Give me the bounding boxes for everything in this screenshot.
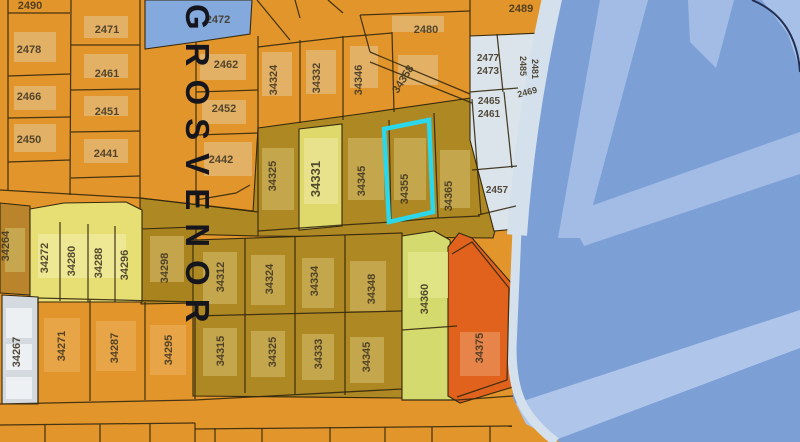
parcel-label-34348: 34348 — [366, 274, 378, 305]
parcel-label-2477: 2477 — [477, 53, 500, 64]
parcel-label-34280: 34280 — [66, 246, 78, 277]
parcel-label-34315: 34315 — [215, 336, 227, 367]
parcel-label-34264: 34264 — [0, 230, 12, 261]
building-footprint — [6, 377, 32, 399]
parcel-map-viewport: Parcel map with selected parcel 34355 24… — [0, 0, 800, 442]
parcel-label-34345: 34345 — [361, 342, 373, 373]
parcel-label-2461: 2461 — [478, 109, 501, 120]
parcel-map[interactable]: Parcel map with selected parcel 34355 24… — [0, 0, 800, 442]
parcel-label-34324: 34324 — [264, 263, 276, 294]
building-footprint — [38, 234, 126, 278]
parcel-label-2462: 2462 — [214, 59, 238, 71]
parcel-label-2485: 2485 — [518, 56, 528, 76]
parcel-label-2461: 2461 — [95, 68, 119, 80]
parcel-label-34325: 34325 — [267, 161, 279, 192]
parcel-label-34272: 34272 — [39, 243, 51, 274]
parcel-label-34334: 34334 — [309, 265, 321, 296]
parcel-label-34325: 34325 — [267, 337, 279, 368]
parcel-label-2450: 2450 — [17, 134, 41, 146]
parcel-label-34298: 34298 — [159, 253, 171, 284]
street-label-grosvenor: GROSVENOR — [179, 4, 216, 336]
parcel-label-34288: 34288 — [93, 248, 105, 279]
parcel-label-34355: 34355 — [399, 174, 411, 205]
parcel-label-34365: 34365 — [443, 181, 455, 212]
parcel-label-34296: 34296 — [119, 250, 131, 281]
parcel-label-2480: 2480 — [414, 24, 438, 36]
parcel-label-2457: 2457 — [486, 185, 509, 196]
parcel-label-2471: 2471 — [95, 24, 119, 36]
parcel-label-2490: 2490 — [18, 0, 42, 12]
parcel-label-2489: 2489 — [509, 3, 533, 15]
parcel-label-2441: 2441 — [94, 148, 118, 160]
parcel-label-34360: 34360 — [419, 284, 431, 315]
parcel-label-2451: 2451 — [95, 106, 119, 118]
parcel-label-2478: 2478 — [17, 44, 41, 56]
parcel-label-34345: 34345 — [356, 166, 368, 197]
parcel-label-34324: 34324 — [268, 64, 280, 95]
parcel-label-34332: 34332 — [311, 63, 323, 94]
parcel-label-34346: 34346 — [353, 65, 365, 96]
parcel-label-34295: 34295 — [163, 335, 175, 366]
parcel-label-34375: 34375 — [474, 333, 486, 364]
parcel-label-2481: 2481 — [530, 59, 540, 79]
parcel-label-34271: 34271 — [56, 331, 68, 362]
parcel-label-2465: 2465 — [478, 96, 501, 107]
parcel-label-34267: 34267 — [11, 337, 23, 368]
parcel-label-34287: 34287 — [109, 333, 121, 364]
building-footprint — [6, 308, 32, 338]
parcel-label-2473: 2473 — [477, 66, 500, 77]
parcel-label-34333: 34333 — [313, 339, 325, 370]
parcel-label-34331: 34331 — [308, 161, 323, 197]
parcel-label-2466: 2466 — [17, 91, 41, 103]
